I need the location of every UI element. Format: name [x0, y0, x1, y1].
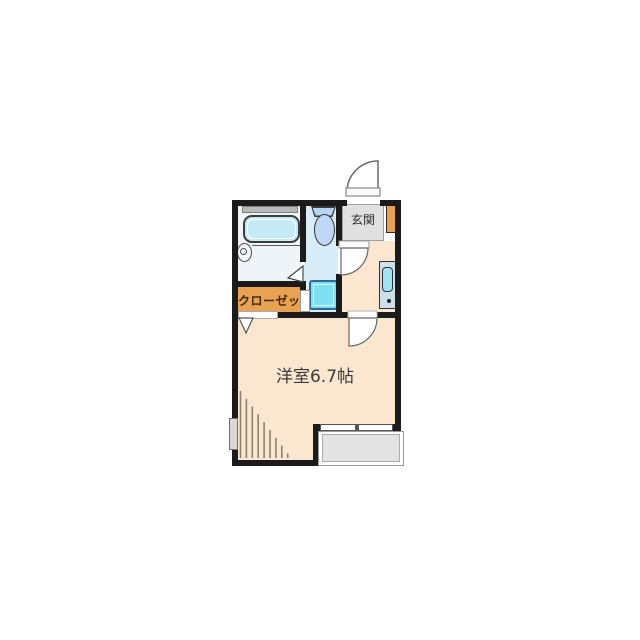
- sloped-ceiling-hatch: [241, 391, 288, 458]
- entrance-door-arc: [347, 161, 378, 192]
- door-and-symbol-overlay: [0, 0, 640, 640]
- main-room-label: 洋室6.7帖: [235, 362, 395, 387]
- main-door-swing: [349, 318, 377, 346]
- genkan-label: 玄関: [342, 211, 384, 228]
- entrance-door-leaf: [346, 188, 380, 196]
- washroom-door-swing: [341, 248, 368, 275]
- washroom-door-leaf: [339, 241, 369, 248]
- bathroom-folding-door: [288, 266, 303, 282]
- closet-folding-door: [239, 318, 253, 333]
- floor-plan-canvas: クローゼット: [0, 0, 640, 640]
